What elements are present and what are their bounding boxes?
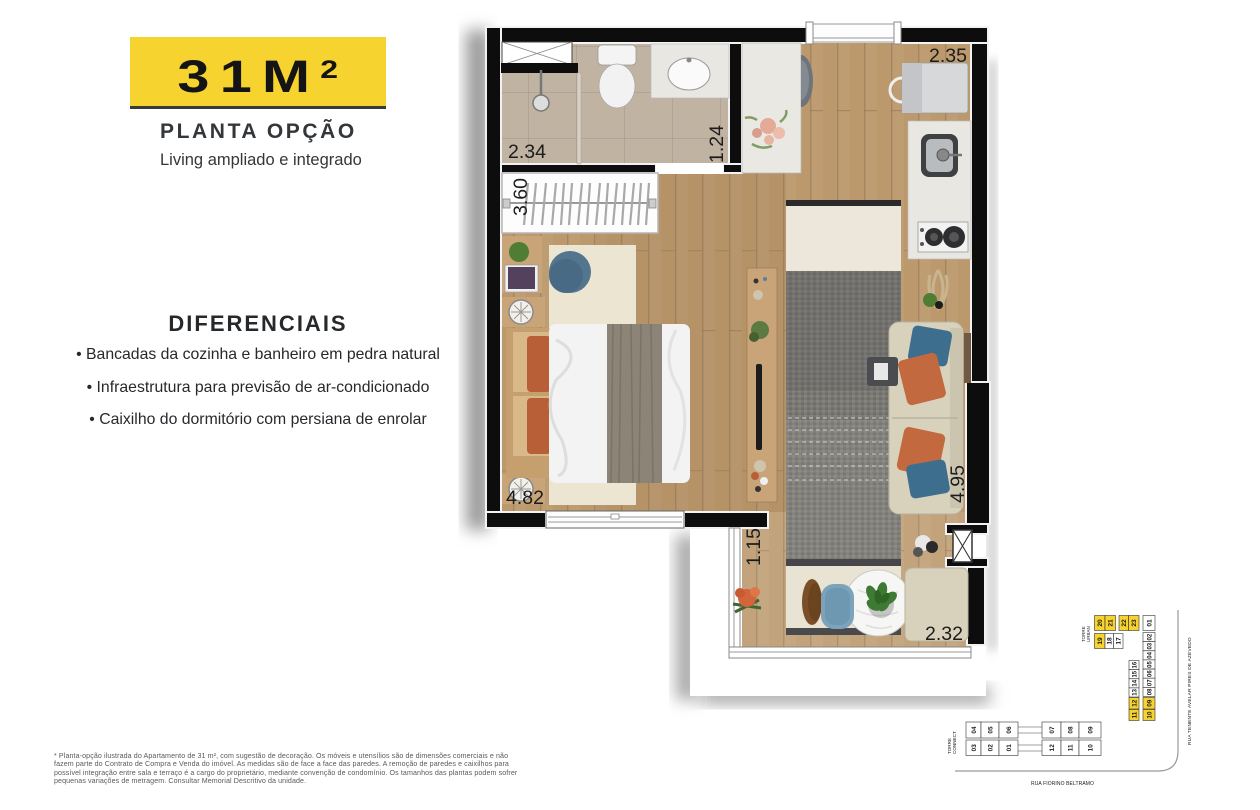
svg-text:2.35: 2.35 [929,45,967,67]
svg-text:03: 03 [971,744,978,752]
svg-text:05: 05 [1147,661,1153,668]
svg-text:4.95: 4.95 [947,465,969,503]
svg-text:17: 17 [1116,637,1123,645]
svg-text:RUA FIORINO BELTRAMO: RUA FIORINO BELTRAMO [1031,781,1094,787]
svg-text:05: 05 [987,726,994,734]
svg-text:2.32: 2.32 [925,623,963,645]
svg-text:15: 15 [1132,670,1138,677]
svg-text:09: 09 [1146,699,1153,707]
svg-text:01: 01 [1146,619,1153,627]
svg-text:21: 21 [1108,619,1115,627]
svg-text:22: 22 [1121,619,1128,627]
svg-text:07: 07 [1049,726,1056,734]
svg-text:11: 11 [1067,744,1074,751]
svg-text:10: 10 [1087,744,1094,752]
svg-text:10: 10 [1146,711,1153,719]
svg-text:2.34: 2.34 [508,141,546,163]
svg-text:13: 13 [1132,688,1138,695]
svg-text:02: 02 [987,744,994,752]
svg-text:1.24: 1.24 [706,125,728,163]
svg-text:14: 14 [1132,679,1138,686]
svg-text:RUA TENENTE AVELAR PIRES DE AZ: RUA TENENTE AVELAR PIRES DE AZEVEDO [1187,637,1193,745]
svg-text:08: 08 [1067,726,1074,734]
svg-text:3.60: 3.60 [510,178,532,216]
svg-text:URBAN: URBAN [1086,626,1091,642]
svg-text:06: 06 [1147,670,1153,677]
svg-text:1.15: 1.15 [743,528,765,566]
svg-text:18: 18 [1107,637,1114,645]
svg-text:4.82: 4.82 [506,487,544,509]
svg-text:09: 09 [1087,726,1094,734]
svg-text:07: 07 [1147,679,1153,686]
svg-text:06: 06 [1006,726,1013,734]
svg-text:23: 23 [1131,619,1138,627]
svg-text:02: 02 [1147,633,1153,640]
svg-text:12: 12 [1131,699,1138,707]
svg-text:04: 04 [971,726,978,734]
svg-text:20: 20 [1097,619,1104,627]
svg-text:16: 16 [1132,661,1138,668]
svg-text:01: 01 [1006,744,1013,752]
svg-text:03: 03 [1147,642,1153,649]
svg-text:04: 04 [1147,651,1153,658]
svg-text:11: 11 [1131,711,1138,718]
svg-text:12: 12 [1049,744,1056,752]
svg-text:19: 19 [1097,637,1104,645]
svg-text:08: 08 [1147,688,1153,695]
svg-text:CONNECT: CONNECT [952,731,957,754]
